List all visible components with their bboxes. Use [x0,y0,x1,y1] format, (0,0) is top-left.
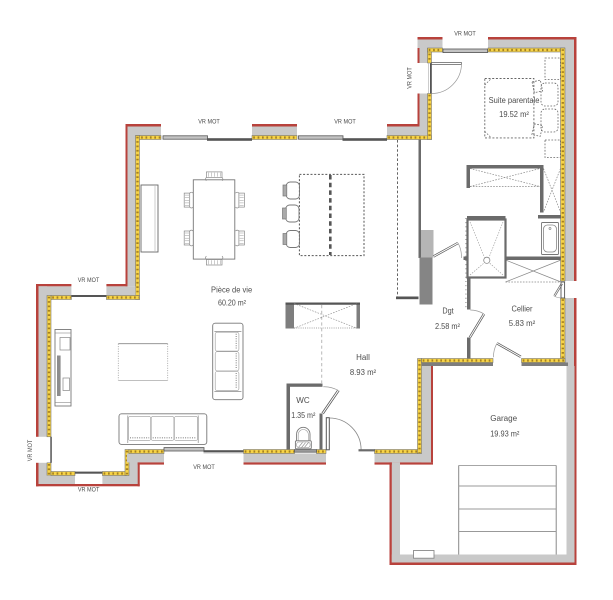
svg-text:WC: WC [296,395,309,405]
svg-text:5.83 m²: 5.83 m² [509,319,536,328]
svg-text:VR MOT: VR MOT [198,119,220,126]
svg-text:19.93 m²: 19.93 m² [490,430,519,439]
svg-text:VR MOT: VR MOT [334,119,356,126]
svg-text:1.35 m²: 1.35 m² [291,411,315,420]
svg-text:2.58 m²: 2.58 m² [435,322,460,331]
svg-text:VR MOT: VR MOT [454,31,476,38]
svg-text:8.93 m²: 8.93 m² [350,368,377,377]
svg-text:Pièce de vie: Pièce de vie [211,285,252,295]
svg-text:19.52 m²: 19.52 m² [499,110,529,119]
svg-text:VR MOT: VR MOT [78,277,100,284]
svg-text:VR MOT: VR MOT [78,487,100,494]
svg-text:Hall: Hall [356,352,370,362]
svg-text:Suite parentale: Suite parentale [489,95,540,105]
svg-text:Dgt: Dgt [442,306,454,316]
svg-text:VR MOT: VR MOT [407,67,414,89]
svg-text:VR MOT: VR MOT [193,464,215,471]
svg-text:Cellier: Cellier [511,304,532,314]
svg-text:VR MOT: VR MOT [27,440,34,462]
svg-text:Garage: Garage [490,413,517,423]
svg-text:60.20 m²: 60.20 m² [218,299,246,308]
